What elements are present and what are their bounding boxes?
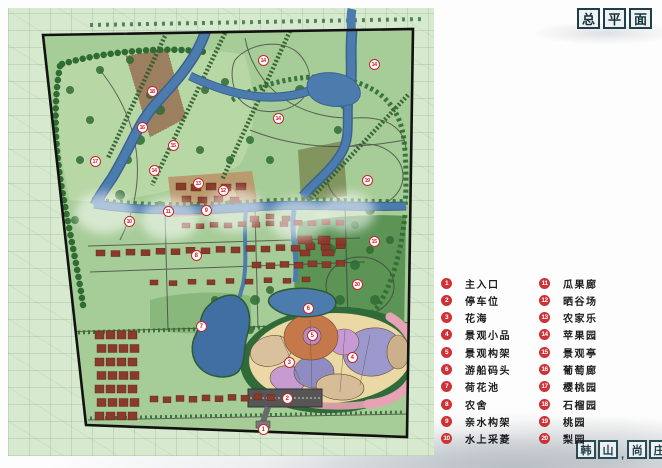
legend-number-badge: 9 [441,416,452,427]
page-title: 总平面 [577,8,652,29]
legend-item-13: 13农家乐 [539,312,598,324]
title-char-2: 面 [629,8,652,29]
legend-item-7: 7荷花池 [441,381,511,393]
legend-label: 石榴园 [563,397,598,412]
legend: 1主入口2停车位3花海4景观小品5景观构架6游船码头7荷花池8农舍9亲水构架10… [441,277,598,450]
legend-number-badge: 10 [441,433,452,444]
legend-label: 景观构架 [465,345,511,360]
map-marker-1: 1 [258,424,269,435]
legend-item-3: 3花海 [441,312,511,324]
legend-label: 主入口 [465,276,500,291]
legend-label: 亲水构架 [465,414,511,429]
legend-number-badge: 2 [441,295,452,306]
seal-separator: , [621,451,624,459]
seal-char-3: 庄 [649,440,662,459]
map-marker-5: 5 [307,330,318,341]
map-marker-4: 4 [347,352,358,363]
map-marker-9: 9 [201,205,212,216]
legend-label: 游船码头 [465,362,511,377]
title-char-0: 总 [577,8,600,29]
legend-item-10: 10水上采菱 [441,433,511,445]
legend-number-badge: 20 [539,433,550,444]
map-marker-19: 19 [362,175,373,186]
seal-char-2: 尚 [627,440,647,459]
legend-number-badge: 5 [441,347,452,358]
legend-item-12: 12晒谷场 [539,294,598,306]
map-marker-15: 15 [369,236,380,247]
legend-label: 葡萄廊 [563,362,598,377]
legend-item-6: 6游船码头 [441,363,511,375]
legend-column-2: 11瓜果廊12晒谷场13农家乐14苹果园15景观亭16葡萄廊17樱桃园18石榴园… [539,277,598,450]
legend-number-badge: 8 [441,399,452,410]
legend-item-4: 4景观小品 [441,329,511,341]
legend-item-16: 16葡萄廊 [539,363,598,375]
legend-label: 荷花池 [465,379,500,394]
legend-number-badge: 7 [441,381,452,392]
legend-item-2: 2停车位 [441,294,511,306]
legend-label: 水上采菱 [465,431,511,446]
map-marker-14: 14 [369,59,380,70]
legend-item-17: 17樱桃园 [539,381,598,393]
title-char-1: 平 [603,8,626,29]
legend-label: 桃园 [563,414,586,429]
legend-item-15: 15景观亭 [539,346,598,358]
legend-item-18: 18石榴园 [539,398,598,410]
legend-number-badge: 11 [539,278,550,289]
legend-number-badge: 18 [539,399,550,410]
map-marker-10: 10 [124,216,135,227]
map-marker-6: 6 [303,303,314,314]
map-marker-14: 14 [273,113,284,124]
map-marker-11: 11 [163,206,174,217]
map-marker-18: 18 [147,86,158,97]
map-marker-15: 15 [168,140,179,151]
legend-label: 农舍 [465,397,488,412]
legend-label: 瓜果廊 [563,276,598,291]
legend-item-8: 8农舍 [441,398,511,410]
legend-number-badge: 16 [539,364,550,375]
legend-number-badge: 17 [539,381,550,392]
legend-item-19: 19桃园 [539,415,598,427]
legend-item-9: 9亲水构架 [441,415,511,427]
legend-column-1: 1主入口2停车位3花海4景观小品5景观构架6游船码头7荷花池8农舍9亲水构架10… [441,277,511,450]
legend-number-badge: 12 [539,295,550,306]
legend-number-badge: 15 [539,347,550,358]
legend-item-20: 20梨园 [539,433,598,445]
legend-number-badge: 4 [441,329,452,340]
legend-item-11: 11瓜果廊 [539,277,598,289]
map-marker-14: 14 [149,165,160,176]
legend-label: 停车位 [465,293,500,308]
legend-number-badge: 6 [441,364,452,375]
legend-label: 梨园 [563,431,586,446]
legend-number-badge: 1 [441,278,452,289]
page: 123456789101112131414141415151617181920 … [0,0,662,468]
legend-label: 花海 [465,310,488,325]
legend-number-badge: 14 [539,329,550,340]
legend-item-14: 14苹果园 [539,329,598,341]
seal-char-1: 山 [598,440,618,459]
map-marker-20: 20 [352,279,363,290]
legend-label: 樱桃园 [563,379,598,394]
map-marker-3: 3 [284,357,295,368]
map-marker-14: 14 [258,55,269,66]
legend-number-badge: 3 [441,312,452,323]
legend-item-5: 5景观构架 [441,346,511,358]
map-marker-13: 13 [193,178,204,189]
legend-number-badge: 19 [539,416,550,427]
legend-number-badge: 13 [539,312,550,323]
map-marker-8: 8 [191,250,202,261]
legend-label: 苹果园 [563,327,598,342]
legend-label: 农家乐 [563,310,598,325]
map-marker-16: 16 [137,122,148,133]
map-marker-17: 17 [90,156,101,167]
legend-label: 景观亭 [563,345,598,360]
map-marker-12: 12 [218,185,229,196]
legend-item-1: 1主入口 [441,277,511,289]
legend-label: 晒谷场 [563,293,598,308]
map-marker-7: 7 [196,321,207,332]
map-marker-2: 2 [282,393,293,404]
legend-label: 景观小品 [465,327,511,342]
